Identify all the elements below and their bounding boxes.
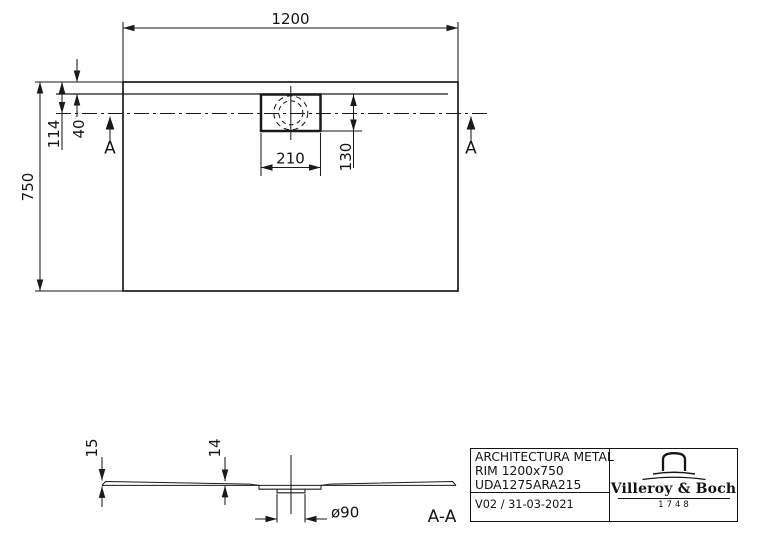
dim-depth-label: 750 [19, 173, 37, 202]
brand-underline [618, 498, 730, 499]
dim-drain-box-width-label: 210 [276, 150, 305, 168]
title-block-text-cell: ARCHITECTURA METAL RIM 1200x750 UDA1275A… [471, 449, 610, 521]
top-view: 1200 750 114 40 [19, 10, 487, 291]
dim-rim-offset: 40 [70, 59, 88, 139]
dim-drain-box-depth-label: 130 [337, 143, 355, 172]
section-cut-marker-right: A [465, 117, 477, 159]
product-code: UDA1275ARA215 [475, 479, 609, 493]
dim-edge-height: 15 [83, 438, 102, 507]
section-cut-label-left: A [104, 139, 116, 159]
brand-logo: Villeroy & Boch 1748 [610, 449, 737, 521]
brand-year: 1748 [655, 500, 692, 510]
dim-drain-diameter-label: ø90 [331, 504, 359, 522]
product-info: ARCHITECTURA METAL RIM 1200x750 UDA1275A… [471, 449, 609, 493]
drawing-sheet: 1200 750 114 40 [0, 0, 765, 543]
section-view: 15 14 ø90 A-A [83, 438, 457, 527]
product-name-line2: RIM 1200x750 [475, 465, 609, 479]
dim-drain-center-label: 114 [45, 120, 63, 149]
section-top-surface-left [102, 482, 259, 486]
section-label: A-A [428, 507, 457, 527]
brand-name: Villeroy & Boch [611, 481, 737, 497]
dim-edge-height-label: 15 [83, 438, 101, 457]
title-block: ARCHITECTURA METAL RIM 1200x750 UDA1275A… [470, 448, 738, 522]
dim-drain-diameter: ø90 [255, 494, 359, 523]
faucet-icon [642, 451, 706, 481]
dim-width-label: 1200 [271, 10, 309, 28]
dim-body-height-label: 14 [206, 438, 224, 457]
dim-body-height: 14 [206, 438, 225, 505]
dim-width: 1200 [123, 10, 458, 28]
product-name-line1: ARCHITECTURA METAL [475, 451, 609, 465]
dim-depth: 750 [19, 82, 40, 291]
dim-drain-box-depth: 130 [322, 95, 362, 172]
drain-flange [259, 485, 321, 489]
section-cut-marker-left: A [104, 117, 116, 159]
version-date: V02 / 31-03-2021 [471, 493, 609, 522]
dim-drain-center: 114 [45, 82, 63, 150]
section-top-surface-right [322, 482, 457, 486]
dim-rim-offset-label: 40 [70, 119, 88, 138]
section-cut-label-right: A [465, 139, 477, 159]
